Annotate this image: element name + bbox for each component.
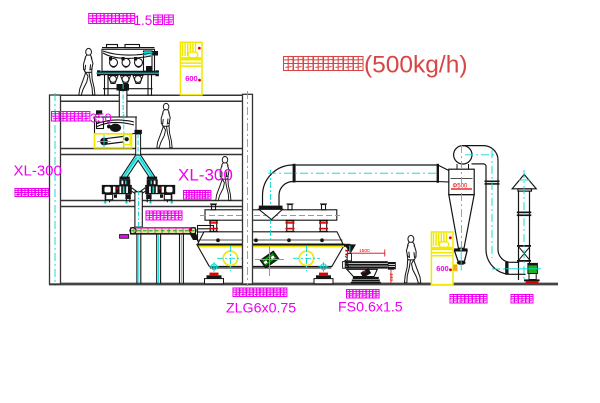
svg-text:350: 350 <box>90 111 112 126</box>
svg-text:ZLG6x0.75: ZLG6x0.75 <box>226 301 296 317</box>
svg-text:1500: 1500 <box>359 248 370 254</box>
svg-text:(500kg/h): (500kg/h) <box>364 52 468 79</box>
svg-text:FS0.6x1.5: FS0.6x1.5 <box>338 300 403 316</box>
svg-text:XL-300: XL-300 <box>178 166 233 185</box>
svg-text:XL-300: XL-300 <box>14 163 62 180</box>
svg-text:340: 340 <box>388 273 394 281</box>
svg-text:1.5: 1.5 <box>134 13 153 28</box>
